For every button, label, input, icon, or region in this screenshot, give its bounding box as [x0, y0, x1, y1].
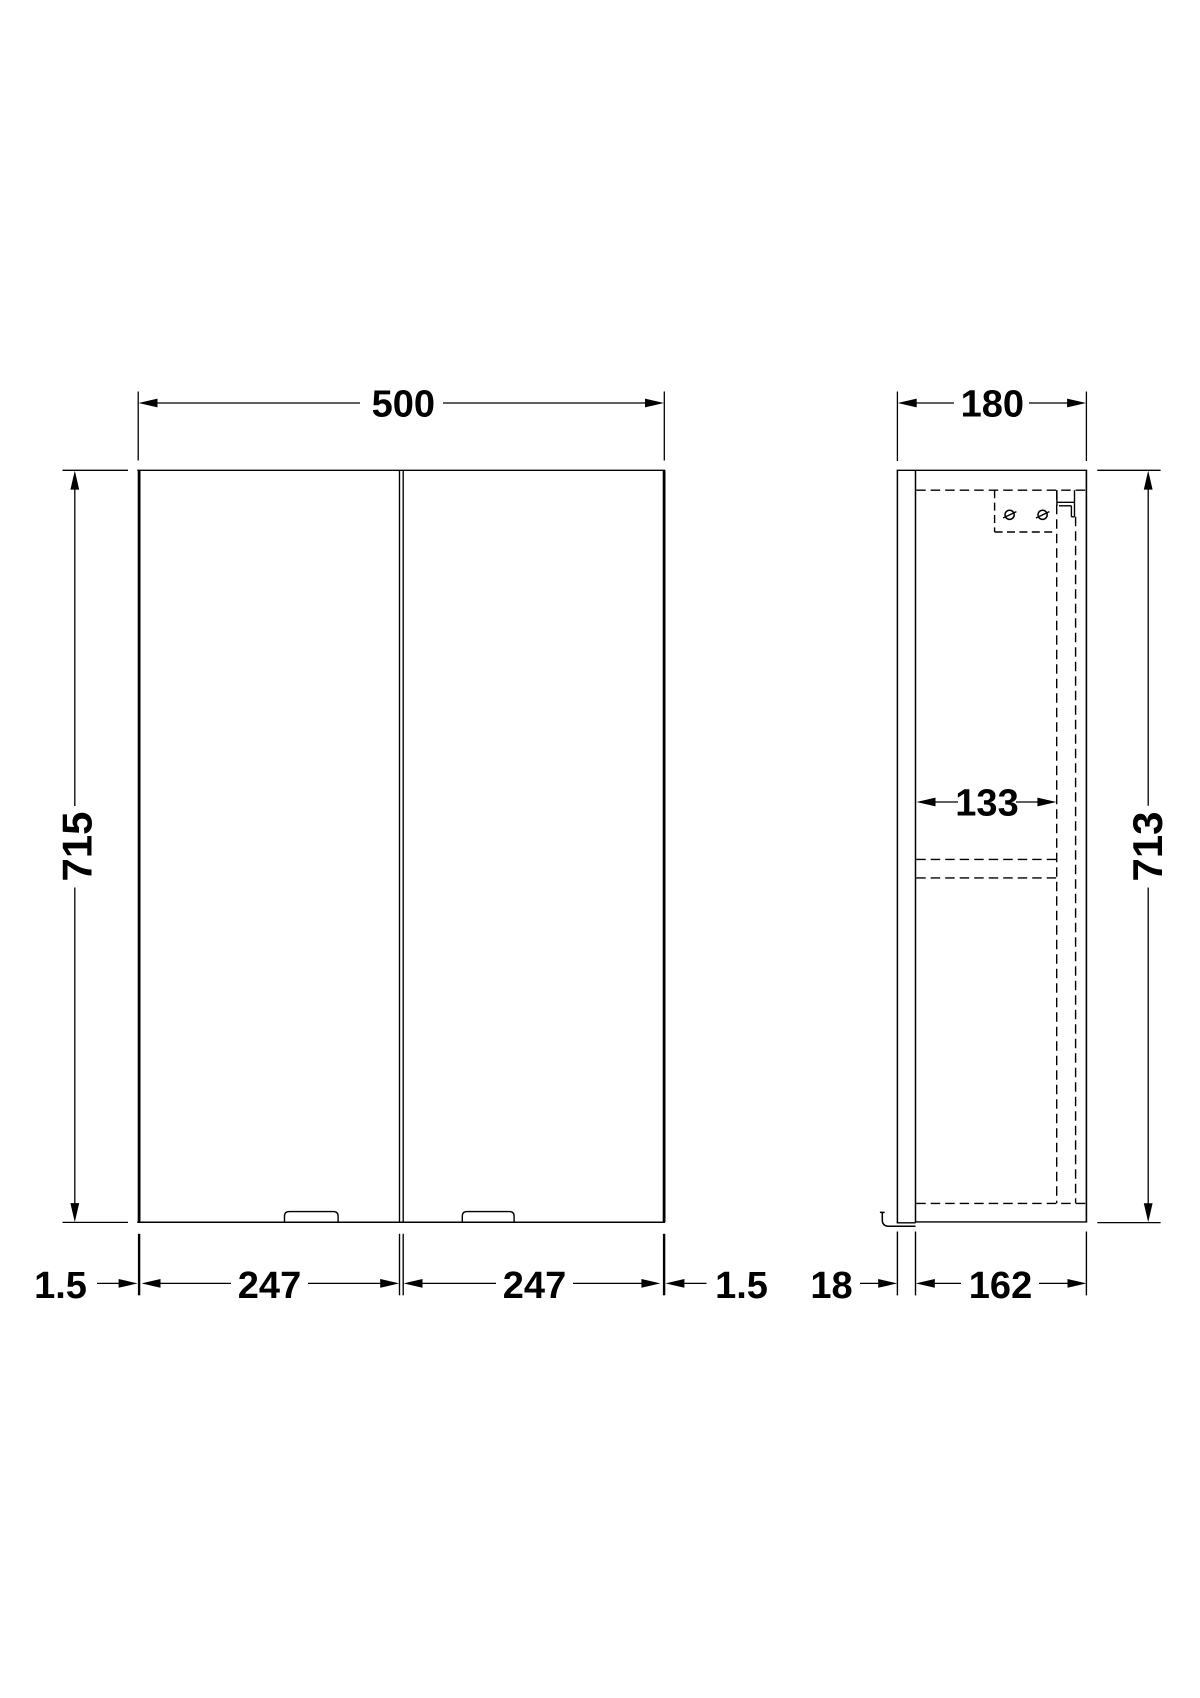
svg-text:247: 247 — [238, 1265, 301, 1307]
svg-text:162: 162 — [969, 1265, 1032, 1307]
svg-text:180: 180 — [961, 384, 1024, 426]
svg-text:500: 500 — [372, 384, 435, 426]
svg-text:1.5: 1.5 — [34, 1265, 87, 1307]
svg-text:18: 18 — [810, 1265, 852, 1307]
svg-text:715: 715 — [54, 811, 101, 881]
svg-text:1.5: 1.5 — [715, 1265, 768, 1307]
svg-text:133: 133 — [955, 783, 1018, 825]
svg-text:713: 713 — [1124, 811, 1171, 881]
svg-text:247: 247 — [503, 1265, 566, 1307]
